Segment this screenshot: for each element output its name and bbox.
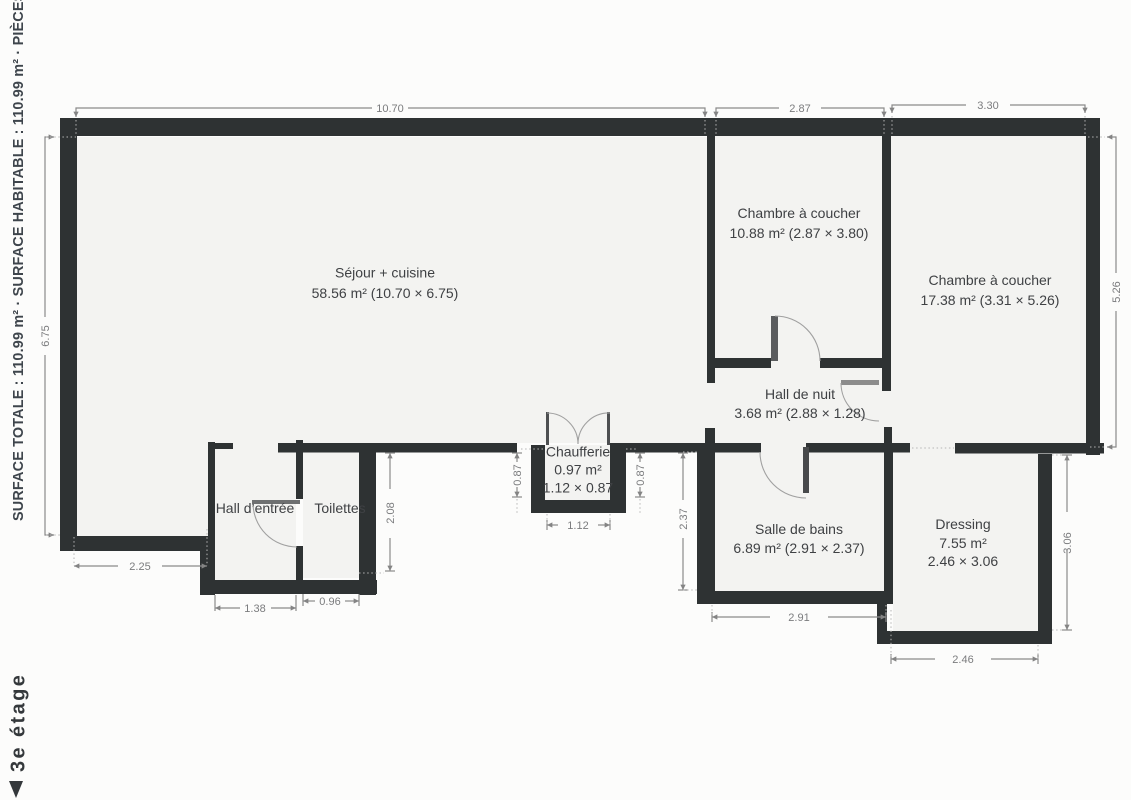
svg-text:7.55 m²: 7.55 m²	[939, 535, 987, 551]
svg-text:Séjour + cuisine: Séjour + cuisine	[335, 265, 435, 281]
svg-text:Toilettes: Toilettes	[314, 500, 365, 516]
svg-text:3.06: 3.06	[1062, 532, 1074, 553]
svg-text:1.38: 1.38	[244, 603, 265, 615]
svg-text:2.91: 2.91	[788, 612, 809, 624]
svg-text:2.46 × 3.06: 2.46 × 3.06	[928, 553, 999, 569]
svg-text:Salle de bains: Salle de bains	[755, 521, 843, 537]
svg-text:6.75: 6.75	[40, 325, 52, 346]
svg-text:6.89 m² (2.91 × 2.37): 6.89 m² (2.91 × 2.37)	[733, 540, 864, 556]
svg-text:2.87: 2.87	[789, 103, 810, 115]
svg-text:Chambre à coucher: Chambre à coucher	[738, 205, 861, 221]
svg-text:17.38 m² (3.31 × 5.26): 17.38 m² (3.31 × 5.26)	[921, 292, 1060, 308]
svg-text:2.37: 2.37	[678, 508, 690, 529]
svg-text:3.30: 3.30	[977, 100, 998, 112]
svg-text:5.26: 5.26	[1111, 281, 1123, 302]
svg-text:Chambre à coucher: Chambre à coucher	[929, 272, 1052, 288]
svg-text:1.12 × 0.87: 1.12 × 0.87	[543, 480, 614, 496]
svg-text:58.56 m² (10.70 × 6.75): 58.56 m² (10.70 × 6.75)	[312, 285, 459, 301]
svg-text:3.68 m² (2.88 × 1.28): 3.68 m² (2.88 × 1.28)	[734, 405, 865, 421]
svg-text:Chaufferie: Chaufferie	[546, 444, 611, 460]
svg-text:2.08: 2.08	[385, 502, 397, 523]
svg-text:10.70: 10.70	[376, 103, 404, 115]
svg-text:Hall d’entrée: Hall d’entrée	[216, 500, 295, 516]
svg-text:0.87: 0.87	[635, 464, 647, 485]
svg-text:0.87: 0.87	[512, 464, 524, 485]
svg-text:0.97 m²: 0.97 m²	[554, 462, 602, 478]
svg-text:1.12: 1.12	[567, 520, 588, 532]
svg-text:SURFACE TOTALE : 110.99 m² · S: SURFACE TOTALE : 110.99 m² · SURFACE HAB…	[10, 0, 27, 521]
svg-text:0.96: 0.96	[319, 596, 340, 608]
svg-text:10.88 m² (2.87 × 3.80): 10.88 m² (2.87 × 3.80)	[730, 225, 869, 241]
svg-text:2.25: 2.25	[129, 561, 150, 573]
svg-text:Dressing: Dressing	[935, 516, 990, 532]
svg-text:Hall de nuit: Hall de nuit	[765, 386, 835, 402]
svg-text:2.46: 2.46	[952, 654, 973, 666]
svg-text:3e étage: 3e étage	[8, 673, 30, 772]
